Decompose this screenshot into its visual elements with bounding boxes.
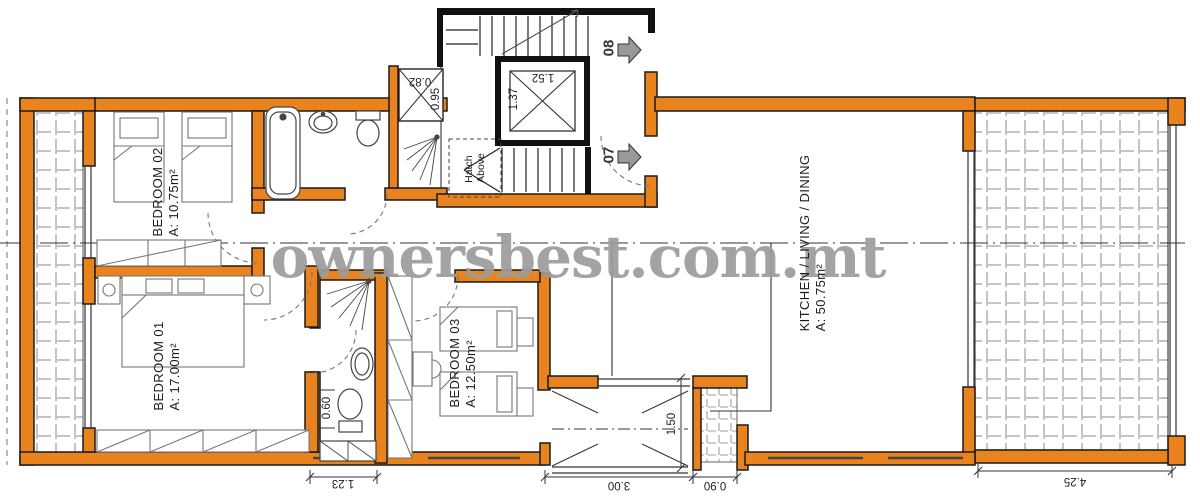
kitchen-area: A: 50.75m²: [813, 155, 829, 332]
unit-08-label: 08: [601, 40, 618, 57]
dim-terrace-width: 4.25: [1064, 475, 1086, 487]
bedroom03-label: BEDROOM 03 A: 12.50m²: [447, 318, 479, 407]
ensuite-sink-icon: [351, 348, 373, 380]
bedside-table: [517, 388, 533, 416]
ensuite-cabinet: [320, 441, 376, 461]
shaft-tiles: [701, 388, 737, 462]
dim-lift-depth: 1.37: [508, 88, 520, 110]
kitchen-name: KITCHEN / LIVING / DINING: [797, 155, 813, 332]
bed-icon-bedroom02-b: [182, 112, 232, 202]
dim-balcony-width: 3.00: [608, 479, 630, 491]
kitchen-label: KITCHEN / LIVING / DINING A: 50.75m²: [797, 155, 829, 332]
bedroom02-area: A: 10.75m²: [166, 147, 182, 236]
dim-shaft-width: 0.90: [704, 479, 726, 491]
dim-duct-width: 0.82: [409, 75, 431, 87]
sink-icon: [309, 111, 337, 133]
bedroom02-label: BEDROOM 02 A: 10.75m²: [150, 147, 182, 236]
bedside-table: [517, 318, 533, 346]
watermark: ownersbest.com.mt: [271, 223, 886, 291]
unit-07-label: 07: [601, 147, 618, 164]
wardrobe-bedroom03: [388, 276, 412, 458]
terrace-railing: [1170, 125, 1176, 436]
dim-lift-width: 1.52: [532, 71, 554, 83]
left-terrace-tiles: [7, 98, 83, 465]
bedroom01-label: BEDROOM 01 A: 17.00m²: [151, 321, 183, 410]
hatch-above-label: Hatch Above: [463, 153, 487, 183]
bed-icon-bedroom01: [98, 276, 270, 367]
ensuite-door-arc: [313, 330, 356, 373]
bedroom01-name: BEDROOM 01: [151, 321, 167, 410]
right-terrace-tiles: [975, 111, 1176, 450]
unit-arrows: [618, 37, 641, 170]
wardrobe-bedroom01: [97, 430, 309, 452]
ensuite-toilet-icon: [338, 389, 362, 432]
toilet-icon: [356, 111, 380, 146]
shower-icon: [404, 135, 439, 185]
unit-08-arrow-icon: [618, 37, 641, 63]
bedroom03-area: A: 12.50m²: [463, 318, 479, 407]
dim-wardrobe-width: 1.23: [332, 477, 354, 489]
unit-07-arrow-icon: [618, 144, 641, 170]
ensuite-fixtures: [320, 279, 376, 461]
wardrobe-bedroom02: [97, 240, 221, 266]
dim-duct-depth: 0.95: [430, 88, 442, 110]
dim-balcony-depth: 1.50: [666, 413, 678, 435]
floor-plan-page: ownersbest.com.mt BEDROOM 02 A: 10.75m² …: [0, 0, 1200, 502]
bedroom02-name: BEDROOM 02: [150, 147, 166, 236]
bedroom01-area: A: 17.00m²: [167, 321, 183, 410]
bathtub-icon: [266, 107, 300, 199]
dim-ensuite-width: 0.60: [321, 397, 333, 419]
bedroom03-name: BEDROOM 03: [447, 318, 463, 407]
desk-bedroom03: [413, 352, 441, 386]
